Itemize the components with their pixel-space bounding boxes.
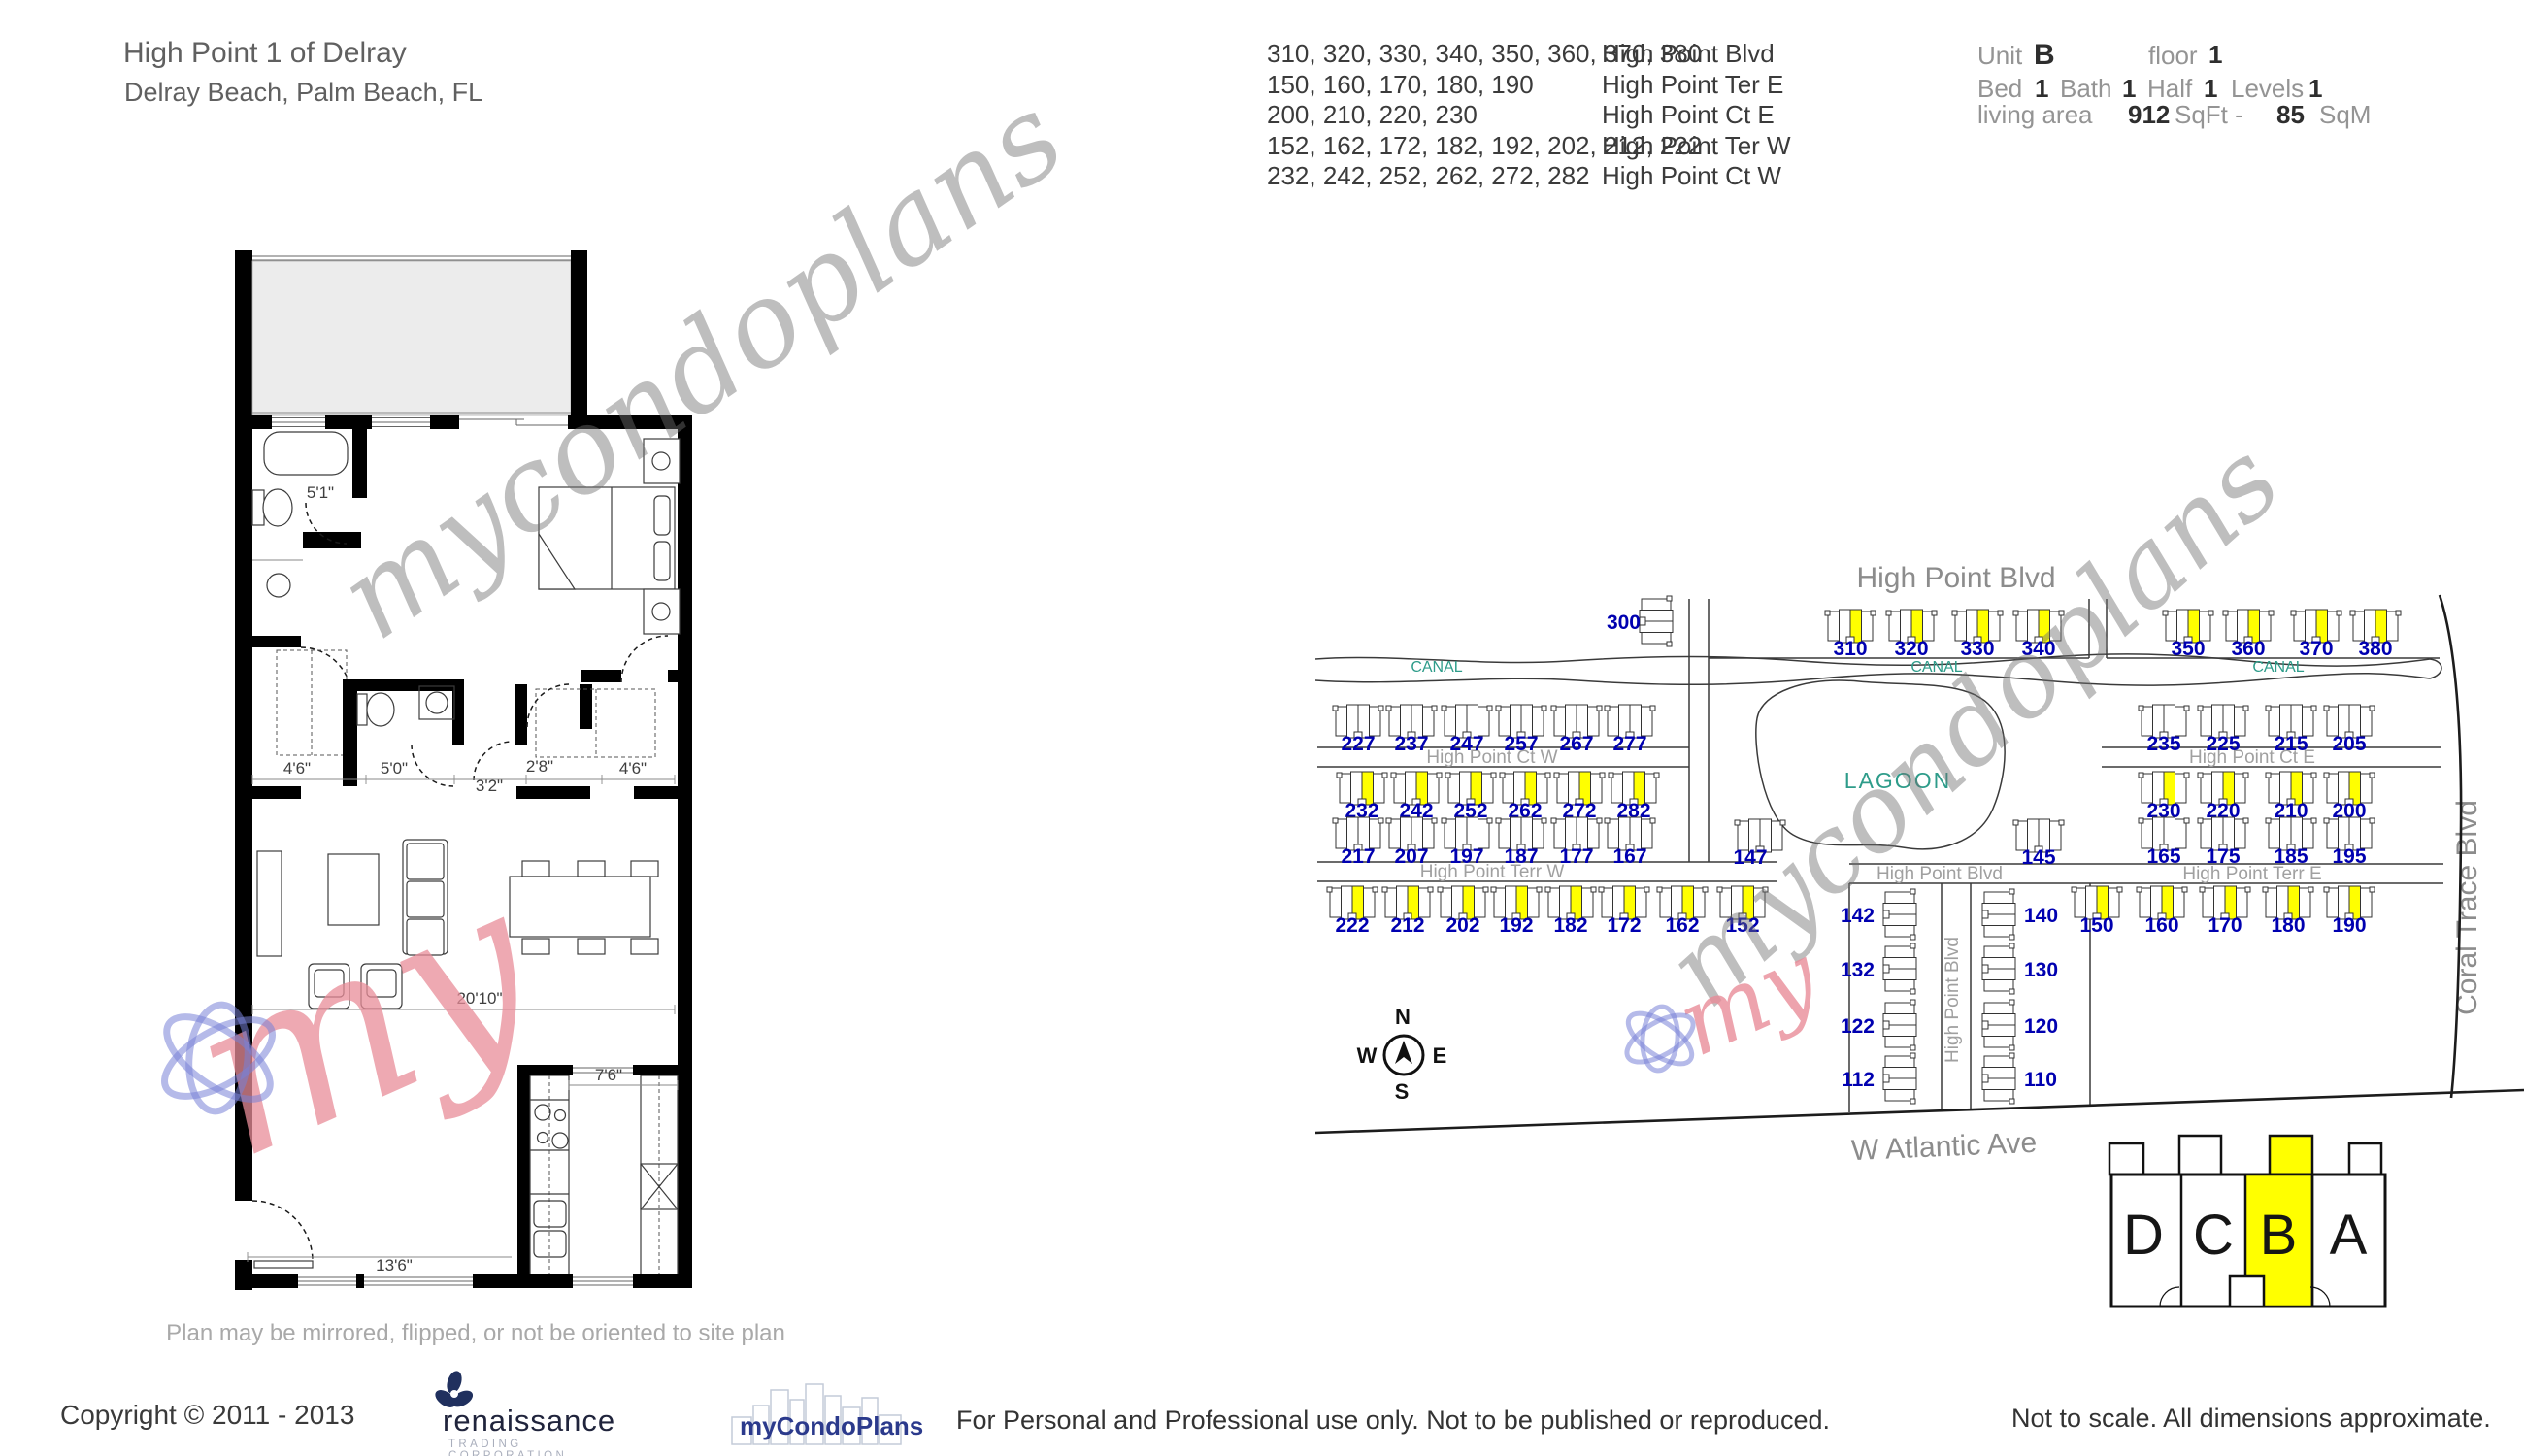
building-number: 167 <box>1612 845 1646 868</box>
building-number: 120 <box>2024 1015 2058 1038</box>
building-number: 320 <box>1894 638 1928 660</box>
address-street: High Point Ter W <box>1602 131 1791 162</box>
coffee-table <box>328 854 379 925</box>
compass: N S W E <box>1357 1005 1447 1104</box>
unit-info-panel: Unit B floor 1 Bed 1 Bath 1 Half 1 Level… <box>1977 41 2443 138</box>
address-numbers: 150, 160, 170, 180, 190 <box>1267 70 1602 101</box>
building-number: 330 <box>1960 638 1994 660</box>
toilet <box>357 694 367 725</box>
building-number: 170 <box>2208 914 2242 937</box>
building-key: D C B A <box>2107 1129 2398 1323</box>
address-numbers: 200, 210, 220, 230 <box>1267 100 1602 131</box>
compass-w: W <box>1357 1043 1378 1068</box>
scale-note: Not to scale. All dimensions approximate… <box>2011 1404 2491 1434</box>
compass-s: S <box>1395 1079 1410 1104</box>
building-number: 257 <box>1504 733 1538 755</box>
key-unit-b-patio <box>2270 1136 2312 1175</box>
nightstand <box>644 589 680 634</box>
building-number: 182 <box>1553 914 1587 937</box>
canal-label: CANAL <box>2252 659 2304 676</box>
building-number: 180 <box>2271 914 2305 937</box>
condo-plan-page: High Point 1 of Delray Delray Beach, Pal… <box>0 0 2524 1456</box>
map-label-coral-trace-blvd: Coral Trace Blvd <box>2451 800 2483 1015</box>
compass-n: N <box>1395 1005 1411 1029</box>
dim-half-bath: 5'0" <box>381 759 408 778</box>
building-number: 112 <box>1842 1069 1875 1091</box>
building-number: 150 <box>2079 914 2113 937</box>
key-letter-c: C <box>2193 1204 2234 1267</box>
street-label-blvd-h: High Point Blvd <box>1876 864 2003 884</box>
building-number: 225 <box>2206 733 2240 755</box>
renaissance-tagline: TRADING CORPORATION <box>448 1439 621 1456</box>
key-letter-d: D <box>2123 1204 2164 1267</box>
building-number: 202 <box>1445 914 1479 937</box>
map-label-w-atlantic-ave: W Atlantic Ave <box>1850 1127 2037 1167</box>
sqm-unit: SqM <box>2319 100 2371 130</box>
building-number: 172 <box>1607 914 1641 937</box>
watermark-flower-icon <box>131 971 306 1145</box>
stove <box>535 1105 550 1120</box>
dim-closet-right: 4'6" <box>619 759 647 778</box>
unit-value: B <box>2034 39 2055 72</box>
map-building <box>1883 1000 1916 1050</box>
building-number: 340 <box>2021 638 2055 660</box>
console <box>257 851 282 956</box>
building-number: 147 <box>1733 846 1767 869</box>
building-number: 277 <box>1612 733 1646 755</box>
entry-door <box>254 1261 313 1268</box>
canal-label: CANAL <box>1910 659 1962 676</box>
building-number: 195 <box>2332 845 2366 868</box>
mycondoplans-name: myCondoPlans <box>740 1411 923 1441</box>
building-number: 142 <box>1841 905 1875 927</box>
window <box>272 418 568 427</box>
building-number: 207 <box>1394 845 1428 868</box>
dim-closet-mid: 2'8" <box>526 757 553 776</box>
building-number: 360 <box>2231 638 2265 660</box>
map-building <box>1982 1000 2015 1050</box>
building-number: 212 <box>1390 914 1424 937</box>
living-area-label: living area <box>1977 100 2093 130</box>
dim-entry: 13'6" <box>376 1256 413 1274</box>
page-subtitle: Delray Beach, Palm Beach, FL <box>124 78 482 108</box>
building-number: 217 <box>1341 845 1375 868</box>
map-building <box>1982 943 2015 994</box>
address-street: High Point Ter E <box>1602 70 1791 101</box>
site-map: High Point Blvd W Atlantic Ave Coral Tra… <box>1315 558 2524 1199</box>
building-number: 162 <box>1665 914 1699 937</box>
lagoon <box>1756 680 2005 849</box>
map-buildings: 2272372472572672772322422522622722822172… <box>1327 596 2401 1104</box>
building-number: 267 <box>1559 733 1593 755</box>
street-label-blvd-v: High Point Blvd <box>1943 937 1963 1063</box>
building-number: 237 <box>1394 733 1428 755</box>
plan-note: Plan may be mirrored, flipped, or not be… <box>136 1320 815 1347</box>
usage-note: For Personal and Professional use only. … <box>956 1406 1830 1436</box>
toilet <box>252 490 264 525</box>
map-label-high-point-blvd-top: High Point Blvd <box>1856 562 2055 594</box>
window <box>298 1277 633 1285</box>
entry-door-swing <box>252 1201 313 1261</box>
dim-closet-left: 4'6" <box>283 759 311 778</box>
renaissance-logo: renaissance TRADING CORPORATION <box>427 1369 621 1456</box>
address-numbers: 310, 320, 330, 340, 350, 360, 370, 380 <box>1267 39 1602 70</box>
building-number: 110 <box>2024 1069 2057 1091</box>
building-number: 187 <box>1504 845 1538 868</box>
dining-table <box>510 877 650 937</box>
building-number: 300 <box>1607 612 1641 634</box>
sqft-value: 912 <box>2128 100 2170 130</box>
watermark-flower-icon <box>1607 985 1713 1092</box>
address-street: High Point Blvd <box>1602 39 1791 70</box>
canal-label: CANAL <box>1411 659 1462 676</box>
map-building <box>1640 596 1673 646</box>
building-number: 197 <box>1449 845 1483 868</box>
renaissance-name: renaissance <box>443 1404 615 1439</box>
address-numbers: 232, 242, 252, 262, 272, 282 <box>1267 161 1602 192</box>
building-number: 227 <box>1341 733 1375 755</box>
building-number: 130 <box>2024 959 2058 981</box>
map-building <box>1883 1053 1916 1104</box>
address-street: High Point Ct E <box>1602 100 1791 131</box>
mycondoplans-logo: myCondoPlans <box>730 1378 905 1456</box>
compass-needle <box>1395 1041 1412 1064</box>
dim-bath: 5'1" <box>307 483 334 502</box>
building-number: 380 <box>2358 638 2392 660</box>
building-number: 132 <box>1841 959 1875 981</box>
bathtub <box>264 432 348 475</box>
patio <box>252 261 571 415</box>
map-building <box>1883 889 1916 940</box>
building-number: 192 <box>1499 914 1533 937</box>
building-number: 370 <box>2299 638 2333 660</box>
building-number: 165 <box>2146 845 2180 868</box>
building-number: 205 <box>2332 733 2366 755</box>
building-number: 175 <box>2206 845 2240 868</box>
map-building <box>1982 889 2015 940</box>
bath-sink <box>267 574 290 597</box>
building-number: 235 <box>2146 733 2180 755</box>
building-number: 152 <box>1725 914 1759 937</box>
building-number: 160 <box>2144 914 2178 937</box>
building-number: 215 <box>2274 733 2308 755</box>
building-number: 177 <box>1559 845 1593 868</box>
floor-plan: 5'1" <box>233 248 699 1306</box>
compass-e: E <box>1433 1043 1447 1068</box>
copyright: Copyright © 2011 - 2013 <box>60 1400 354 1431</box>
key-letter-a: A <box>2330 1204 2368 1267</box>
building-number: 247 <box>1449 733 1483 755</box>
floor-label: floor <box>2148 41 2198 71</box>
address-street: High Point Ct W <box>1602 161 1791 192</box>
key-letter-b: B <box>2260 1204 2298 1267</box>
building-number: 222 <box>1335 914 1369 937</box>
floor-value: 1 <box>2208 40 2222 70</box>
lagoon-label: LAGOON <box>1844 768 1951 793</box>
building-number: 310 <box>1833 638 1867 660</box>
half-bath-sink <box>419 686 454 719</box>
building-number: 185 <box>2274 845 2308 868</box>
sqm-value: 85 <box>2276 100 2305 130</box>
building-number: 350 <box>2171 638 2205 660</box>
dim-kitchen: 7'6" <box>595 1066 622 1084</box>
building-number: 122 <box>1841 1015 1875 1038</box>
nightstand <box>644 439 680 483</box>
map-building <box>1883 943 1916 994</box>
street-label-ter-w: High Point Terr W <box>1420 862 1565 882</box>
address-numbers: 152, 162, 172, 182, 192, 202, 212, 222 <box>1267 131 1602 162</box>
dim-living: 20'10" <box>456 989 502 1008</box>
map-building <box>1982 1053 2015 1104</box>
page-title: High Point 1 of Delray <box>123 37 407 70</box>
dim-hall: 3'2" <box>476 777 503 795</box>
building-number: 145 <box>2021 846 2055 869</box>
unit-label: Unit <box>1977 41 2022 71</box>
building-number: 190 <box>2332 914 2366 937</box>
address-list: 310, 320, 330, 340, 350, 360, 370, 380Hi… <box>1267 39 1791 192</box>
building-number: 140 <box>2024 905 2058 927</box>
sqft-unit: SqFt - <box>2175 100 2243 130</box>
